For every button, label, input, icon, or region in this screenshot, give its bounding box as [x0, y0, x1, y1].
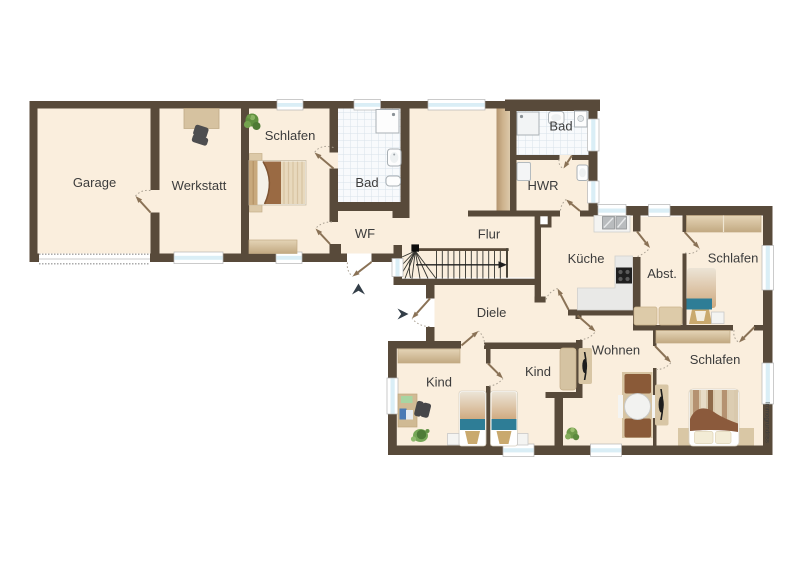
- svg-text:WF: WF: [355, 226, 375, 241]
- svg-text:Bad: Bad: [549, 119, 572, 134]
- svg-text:Wohnen: Wohnen: [592, 343, 640, 358]
- svg-text:HWR: HWR: [527, 178, 558, 193]
- svg-text:Diele: Diele: [477, 305, 507, 320]
- svg-text:Schlafen: Schlafen: [708, 251, 759, 266]
- svg-text:Bad: Bad: [355, 175, 378, 190]
- svg-text:Abst.: Abst.: [647, 266, 677, 281]
- svg-text:Schlafen: Schlafen: [690, 352, 741, 367]
- svg-text:Kind: Kind: [525, 364, 551, 379]
- svg-text:Küche: Küche: [568, 251, 605, 266]
- svg-text:Schlafen: Schlafen: [265, 128, 316, 143]
- svg-text:Werkstatt: Werkstatt: [172, 178, 227, 193]
- svg-text:Garage: Garage: [73, 175, 116, 190]
- svg-text:Kind: Kind: [426, 375, 452, 390]
- svg-text:Flur: Flur: [478, 227, 501, 242]
- svg-text:Immogrundriss: Immogrundriss: [764, 402, 771, 443]
